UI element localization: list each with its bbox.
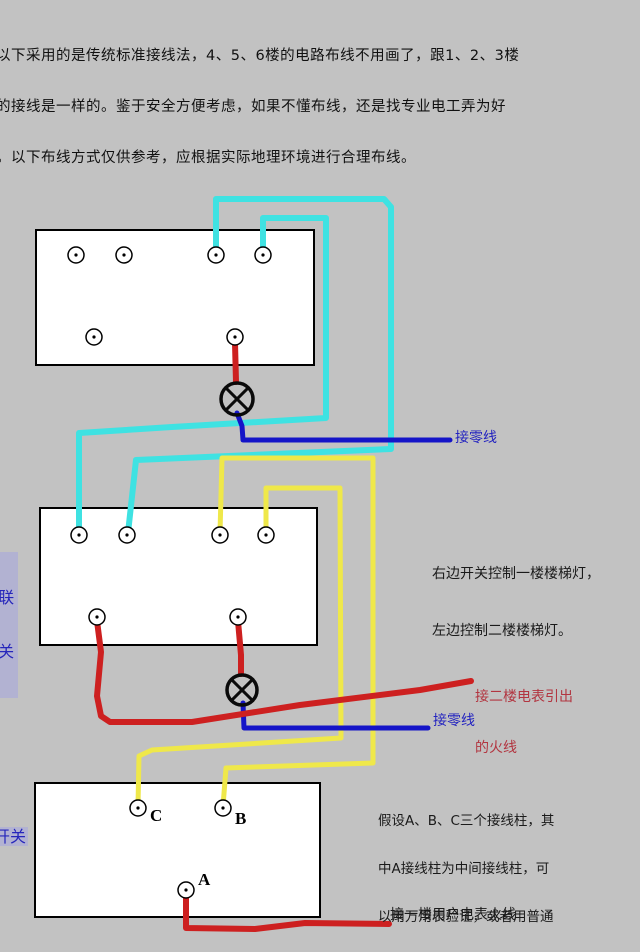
box1-top-4-dot: [261, 253, 264, 256]
header-line-3: 。以下布线方式仅供参考，应根据实际地理环境进行合理布线。: [0, 150, 519, 167]
box2-top-2-dot: [125, 533, 128, 536]
box1-bottom-1-dot: [92, 335, 95, 338]
live-wire-meter1-label: 接一楼用户电表火线: [390, 907, 516, 924]
box1-top-1-dot: [74, 253, 77, 256]
terminal-explanation-note: 假设A、B、C三个接线柱，其 中A接线柱为中间接线柱，可 以用万用表验证，或者用…: [378, 781, 559, 952]
terminal-note-line-1: 假设A、B、C三个接线柱，其: [378, 813, 559, 829]
terminal-b-label: B: [235, 809, 246, 829]
switch-function-note-line-1: 右边开关控制一楼楼梯灯，: [432, 565, 600, 584]
terminal-note-line-2: 中A接线柱为中间接线柱，可: [378, 861, 559, 877]
box2-top-4-dot: [264, 533, 267, 536]
box1-top-2-dot: [122, 253, 125, 256]
box1-bottom-2-dot: [233, 335, 236, 338]
switch-box-floor1: [35, 783, 320, 917]
double-switch-label-char-1: 联: [0, 589, 16, 607]
box2-bottom-1-dot: [95, 615, 98, 618]
live-wire-meter2-label-line-1: 接二楼电表引出: [475, 689, 573, 706]
header-line-2: 的接线是一样的。鉴于安全方便考虑，如果不懂布线，还是找专业电工弄为好: [0, 99, 519, 116]
header-line-1: 以下采用的是传统标准接线法，4、5、6楼的电路布线不用画了，跟1、2、3楼: [0, 48, 519, 65]
box2-top-1-dot: [77, 533, 80, 536]
terminal-c-label: C: [150, 806, 162, 826]
box2-top-3-dot: [218, 533, 221, 536]
wire-red-lamp2-feed: [235, 343, 236, 382]
live-wire-meter2-label-line-2: 的火线: [475, 740, 573, 757]
neutral-wire-label-mid: 接零线: [433, 713, 475, 730]
box1-top-3-dot: [214, 253, 217, 256]
wiring-diagram-page: 以下采用的是传统标准接线法，4、5、6楼的电路布线不用画了，跟1、2、3楼 的接…: [0, 0, 640, 952]
header-note: 以下采用的是传统标准接线法，4、5、6楼的电路布线不用画了，跟1、2、3楼 的接…: [0, 14, 519, 201]
switch-function-note-line-2: 左边控制二楼楼梯灯。: [432, 622, 600, 641]
terminal-a-label: A: [198, 870, 210, 890]
neutral-wire-label-top: 接零线: [455, 430, 497, 447]
wire-red-lamp1-feed: [238, 621, 241, 674]
box3-terminal-a-dot: [184, 888, 187, 891]
live-wire-meter2-label: 接二楼电表引出 的火线: [475, 655, 573, 791]
double-switch-label-char-2: 关: [0, 643, 16, 661]
box2-bottom-2-dot: [236, 615, 239, 618]
switch-label-partial: 开关: [0, 827, 28, 846]
double-switch-label-partial: 联 关: [0, 552, 18, 698]
box3-terminal-b-dot: [221, 806, 224, 809]
wire-blue-neutral-top: [237, 413, 450, 440]
box3-terminal-c-dot: [136, 806, 139, 809]
